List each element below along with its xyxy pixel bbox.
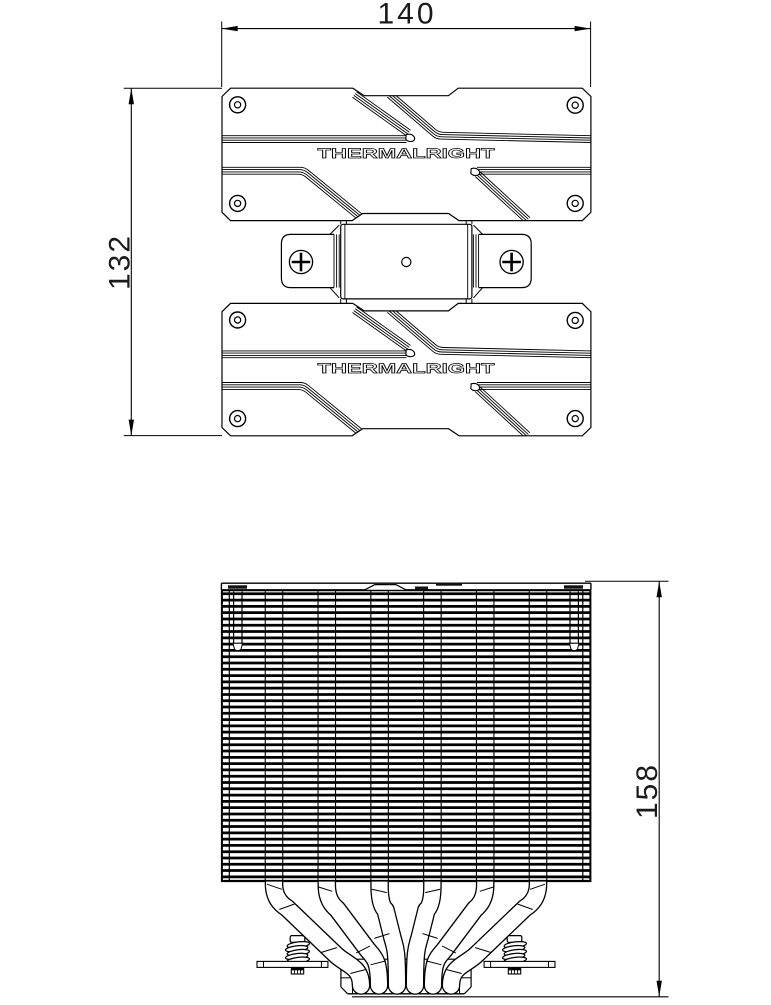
svg-text:132: 132 bbox=[104, 234, 137, 290]
svg-text:158: 158 bbox=[631, 763, 664, 819]
svg-text:140: 140 bbox=[377, 0, 436, 31]
svg-text:THERMALRIGHT: THERMALRIGHT bbox=[318, 146, 496, 161]
